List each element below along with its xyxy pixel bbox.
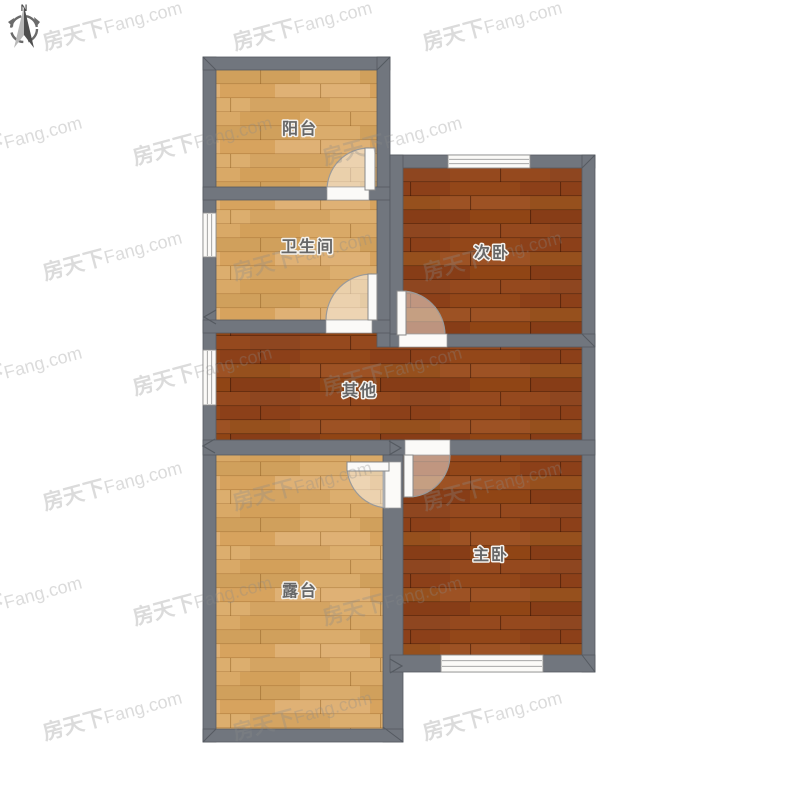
door-opening	[405, 440, 450, 455]
watermark: 房天下Fang.com	[0, 570, 84, 630]
door-opening	[327, 187, 369, 200]
room-bathroom-label: 卫生间	[281, 237, 335, 256]
door-leaf	[404, 455, 413, 497]
room-second-bedroom-label: 次卧	[474, 243, 510, 262]
watermark: 房天下Fang.com	[40, 685, 184, 745]
door-opening	[399, 334, 447, 347]
compass: N	[8, 3, 40, 48]
wall-segment	[203, 57, 390, 70]
watermark: 房天下Fang.com	[40, 0, 184, 55]
door-opening	[326, 320, 372, 333]
wall-segment	[377, 57, 390, 347]
floorplan-svg: 房天下Fang.com房天下Fang.com房天下Fang.com房天下Fang…	[0, 0, 800, 800]
watermark: 房天下Fang.com	[40, 455, 184, 515]
floorplan-image: 房天下Fang.com房天下Fang.com房天下Fang.com房天下Fang…	[0, 0, 800, 800]
watermark: 房天下Fang.com	[420, 0, 564, 55]
watermark: 房天下Fang.com	[0, 340, 84, 400]
window	[203, 213, 216, 257]
room-balcony-label: 阳台	[282, 119, 318, 138]
watermark: 房天下Fang.com	[420, 685, 564, 745]
room-terrace-label: 露台	[282, 581, 318, 600]
room-other-floor	[216, 333, 582, 440]
door-leaf	[368, 274, 377, 320]
watermark: 房天下Fang.com	[0, 110, 84, 170]
wall-segment	[582, 155, 595, 672]
room-master-bedroom-label: 主卧	[473, 545, 509, 564]
window	[448, 155, 530, 168]
window	[441, 655, 543, 672]
watermark: 房天下Fang.com	[230, 0, 374, 55]
room-other-label: 其他	[342, 381, 378, 400]
wall-segment	[203, 440, 403, 455]
watermark: 房天下Fang.com	[40, 225, 184, 285]
door-leaf	[397, 291, 406, 335]
